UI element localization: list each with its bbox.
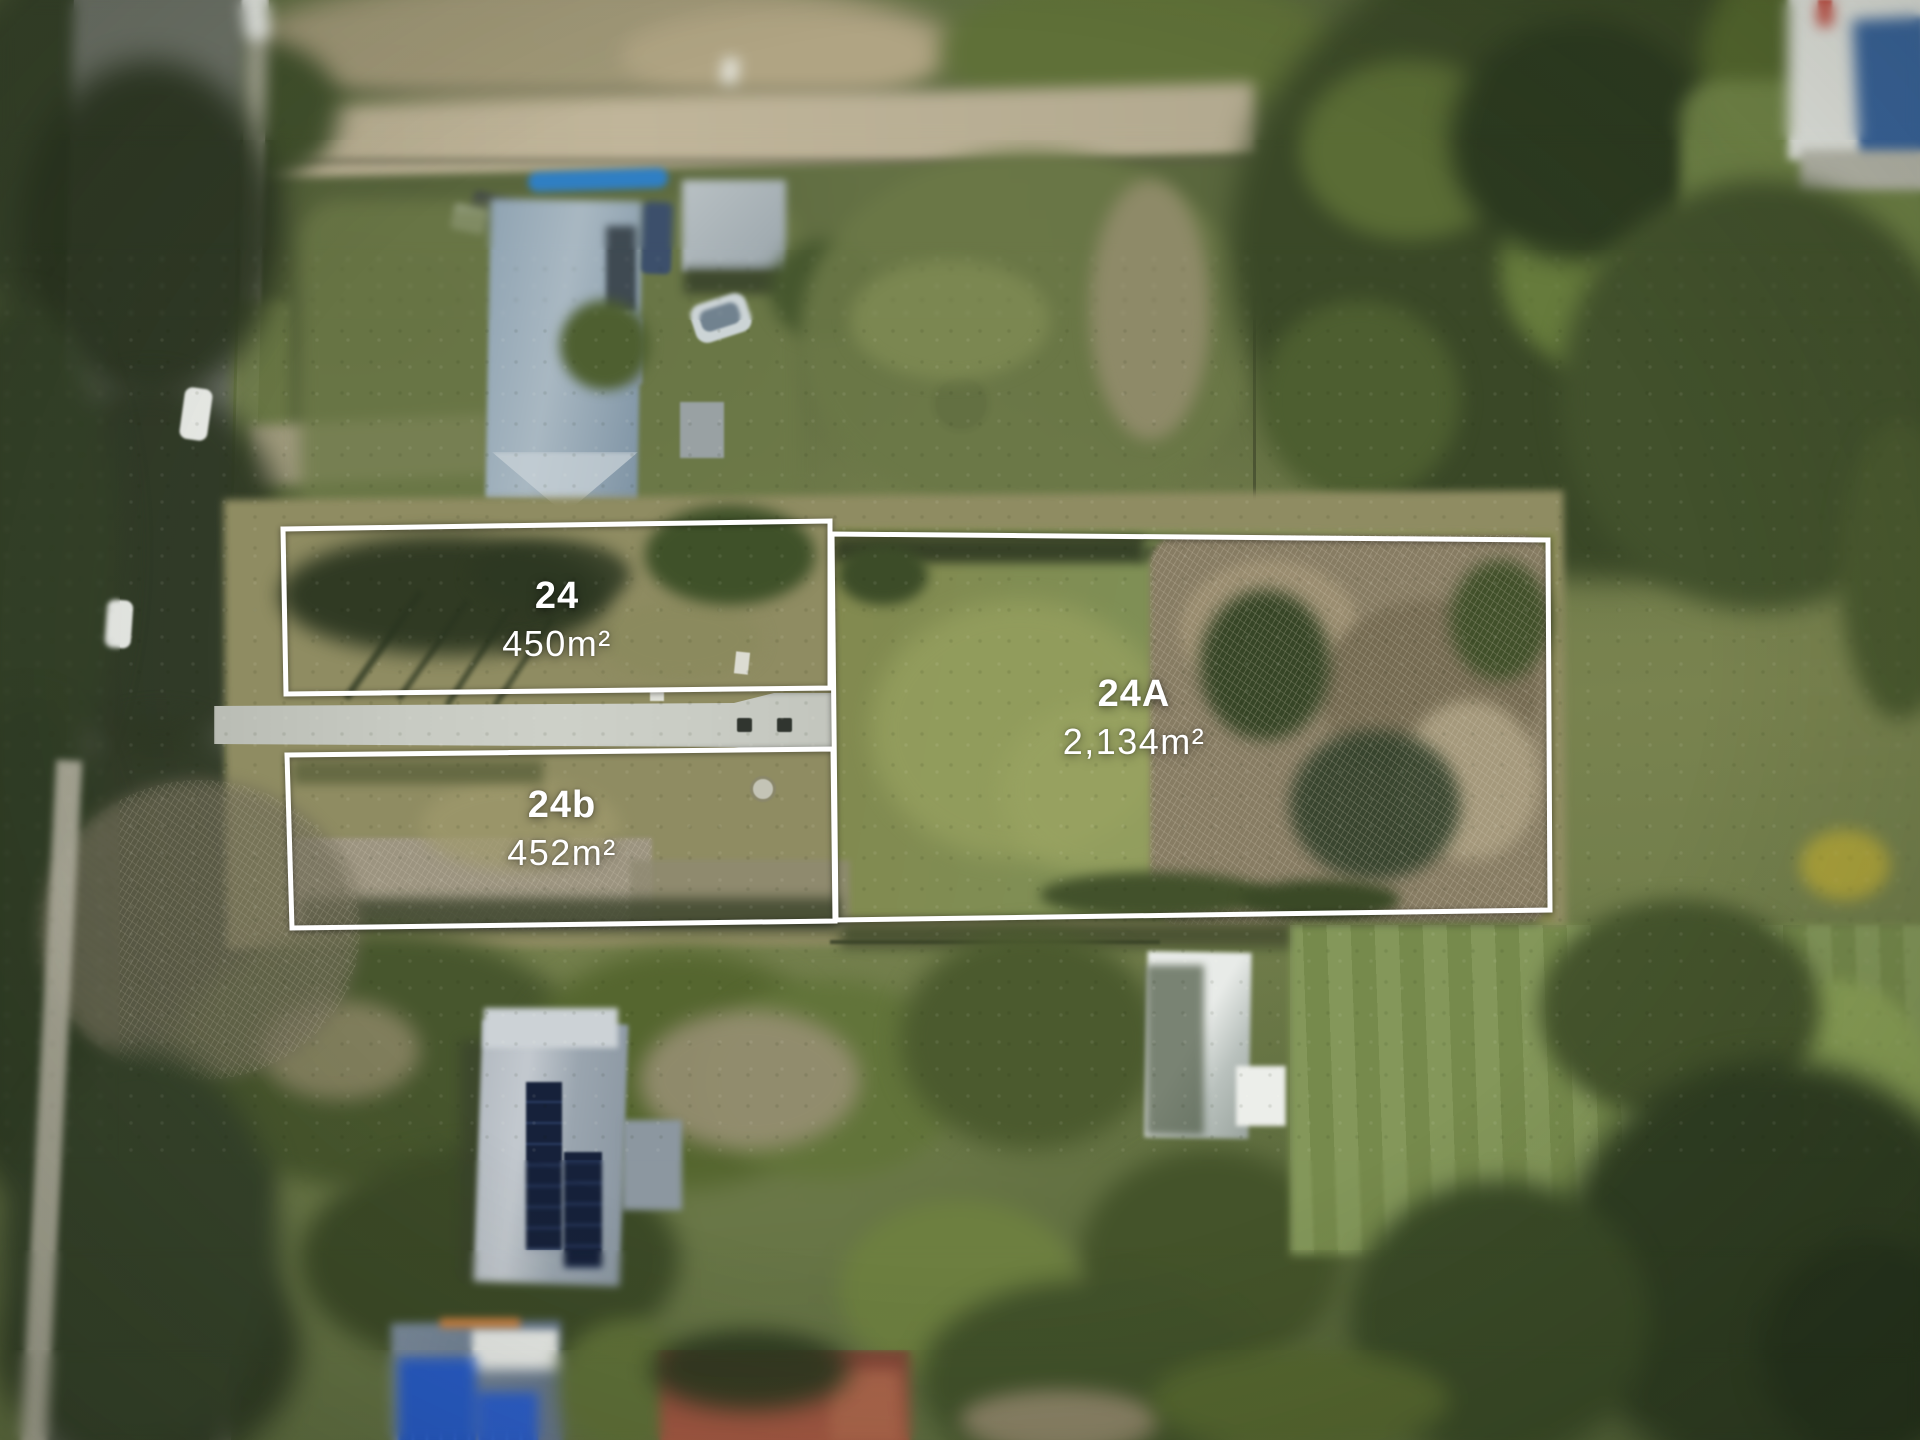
lot-id: 24A: [1098, 675, 1171, 715]
aerial-photo: 24 450m² 24b 452m² 24A 2,134m²: [0, 0, 1920, 1440]
lot-24-label: 24 450m²: [502, 577, 612, 663]
lot-area: 2,134m²: [1063, 723, 1206, 761]
lot-area: 450m²: [502, 625, 612, 663]
lot-24a-label: 24A 2,134m²: [1063, 675, 1206, 761]
lot-id: 24b: [528, 786, 596, 826]
lot-boundaries-overlay: [0, 0, 1920, 1440]
lot-area: 452m²: [507, 834, 617, 872]
lot-24b-label: 24b 452m²: [507, 786, 617, 872]
lot-id: 24: [535, 577, 579, 617]
